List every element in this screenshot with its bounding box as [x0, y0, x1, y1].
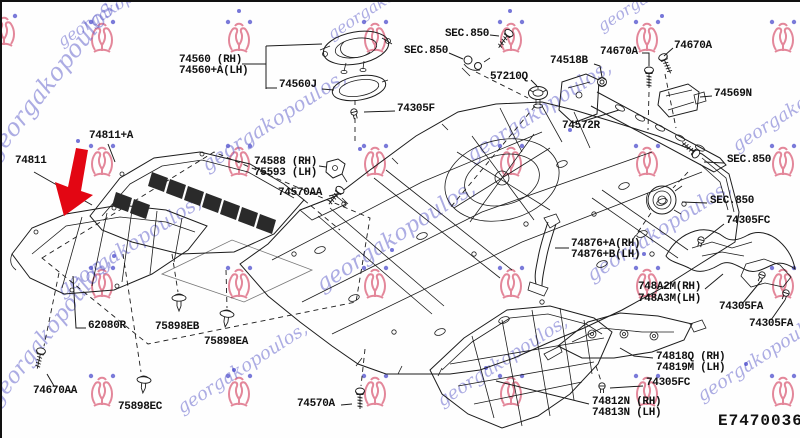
part-label-74569n: 74569N — [714, 89, 752, 100]
part-label-sec850-c: SEC.850 — [727, 155, 771, 166]
part-label-74518b: 74518B — [550, 56, 588, 67]
part-label-74670a-1: 74670A — [600, 47, 638, 58]
part-label-74813n: 74813N (LH) — [592, 408, 661, 419]
part-label-75593-lh: 75593 (LH) — [254, 168, 317, 179]
part-label-sec850-d: SEC.850 — [710, 196, 754, 207]
red-locator-arrow — [55, 148, 93, 216]
parts-diagram-page: georgakopoulos, georgakopoulos, georgako… — [0, 0, 800, 438]
part-74811a-rib-slots — [112, 172, 276, 234]
clip-75898eb — [172, 294, 186, 311]
clip-74305fa-1 — [757, 271, 767, 283]
watermark-crest-icon — [2, 14, 17, 46]
part-label-74572r: 74572R — [562, 121, 600, 132]
part-74876-bracket — [528, 214, 560, 296]
drawing-code: E7470036 — [718, 412, 800, 430]
part-74588-hook — [326, 159, 347, 182]
part-label-57210q: 57210Q — [490, 72, 528, 83]
sec850-clamp — [462, 56, 490, 76]
part-label-74670aa: 74670AA — [33, 386, 77, 397]
hidden-panel-outline — [42, 152, 370, 344]
bolt-74670a-2 — [658, 52, 675, 75]
part-label-74305fc-top: 74305FC — [726, 216, 770, 227]
clip-74305fc-bottom — [599, 383, 605, 393]
part-label-74811: 74811 — [15, 156, 47, 167]
part-label-748a2m: 748A2M(RH) — [638, 282, 701, 293]
part-label-sec850-b: SEC.850 — [404, 46, 448, 57]
part-label-sec850-a: SEC.850 — [445, 29, 489, 40]
clip-75898ec — [136, 375, 151, 393]
part-label-74811a: 74811+A — [89, 131, 133, 142]
part-label-75898eb: 75898EB — [155, 322, 199, 333]
part-label-74819m: 74819M (LH) — [656, 363, 725, 374]
nut-74518b — [598, 78, 607, 87]
part-label-75898ec: 75898EC — [118, 402, 162, 413]
part-label-74670a-2: 74670A — [674, 41, 712, 52]
svg-text:georgakopoulos,: georgakopoulos, — [728, 56, 800, 156]
part-label-74305fa-1: 74305FA — [719, 302, 763, 313]
part-label-74570aa-mid: 74570AA — [278, 188, 322, 199]
svg-text:georgakopoulos,: georgakopoulos, — [462, 55, 616, 167]
part-label-75898ea: 75898EA — [204, 337, 248, 348]
part-label-74305fa-2: 74305FA — [749, 319, 793, 330]
clip-74305f — [350, 108, 359, 120]
part-label-74305f: 74305F — [397, 104, 435, 115]
part-label-74876b: 74876+B(LH) — [571, 250, 640, 261]
part-label-74570a: 74570A — [297, 399, 335, 410]
part-label-74305fc-bot: 74305FC — [646, 378, 690, 389]
bolt-74670a-1 — [645, 67, 654, 88]
svg-text:georgakopoulos,: georgakopoulos, — [433, 311, 571, 411]
part-label-748a3m: 748A3M(LH) — [638, 294, 701, 305]
bolt-74570a — [356, 388, 365, 409]
part-label-74560j: 74560J — [279, 80, 317, 91]
part-74569n-bracket — [658, 84, 706, 117]
clip-75898ea — [218, 309, 234, 328]
part-label-62080r: 62080R — [88, 321, 126, 332]
part-label-74560-lh: 74560+A(LH) — [179, 66, 248, 77]
